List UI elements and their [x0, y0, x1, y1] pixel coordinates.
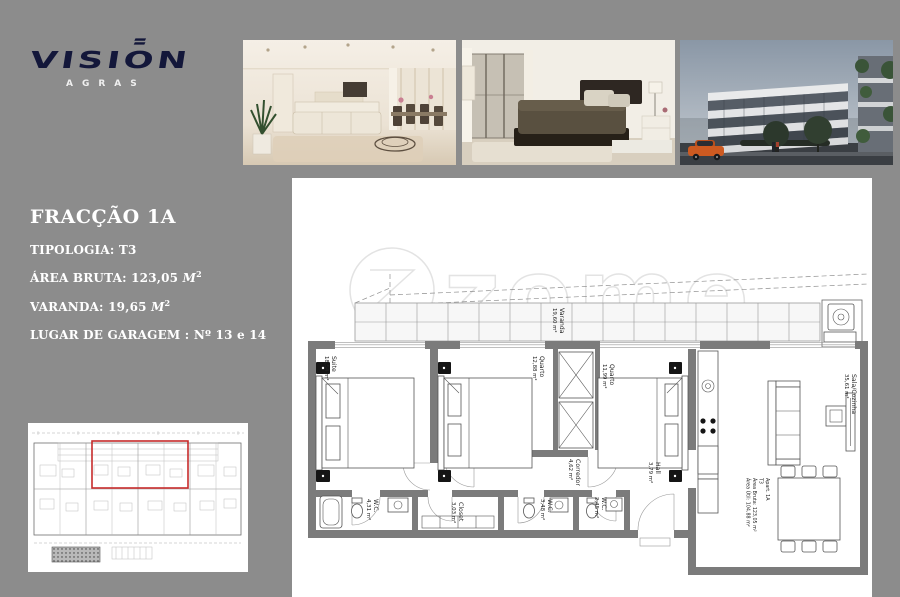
room-name: Quarto	[538, 356, 545, 378]
photo-living-room	[243, 40, 456, 165]
room-label-corredor: Corredor 4,62 m²	[567, 459, 581, 486]
living-room-render	[243, 40, 456, 165]
tv-screen	[343, 82, 367, 97]
kitchen-counter	[698, 351, 718, 513]
spec-area-bruta: ÁREA BRUTA: 123,05 M2	[30, 269, 285, 285]
room-name: W.C.	[546, 499, 553, 513]
room-name: Suite	[330, 356, 337, 372]
floor-plan-panel: zome	[292, 178, 872, 597]
room-name: W.C.	[600, 497, 607, 511]
fridge	[698, 479, 718, 513]
room-area: 3,79 m²	[647, 462, 654, 483]
built-in-wardrobes	[559, 352, 593, 448]
room-name: Closet	[457, 502, 464, 522]
photo-bedroom	[462, 40, 675, 165]
room-name: Sala/Cozinha	[850, 374, 857, 414]
wc1-fixtures	[320, 496, 408, 528]
room-name: W.C.	[372, 499, 379, 513]
room-area: 4,31 m²	[365, 499, 372, 520]
room-area: 11,99 m²	[601, 364, 608, 389]
door	[273, 74, 293, 132]
room-area: 2,45 m²	[593, 497, 600, 518]
brochure-page: VISION AGRAS	[0, 0, 900, 597]
logo-brand-text: VISION	[28, 47, 193, 74]
info-line: T3	[758, 477, 764, 484]
apartment-info-block: Apart. 1A T3 Área Bruta: 123,05 m² Área …	[745, 477, 771, 532]
decor-vase	[663, 108, 668, 113]
room-area: 18,54 m²	[323, 356, 330, 381]
vision-agras-logo: VISION AGRAS	[30, 46, 200, 89]
spec-garagem: LUGAR DE GARAGEM : Nº 13 e 14	[30, 326, 285, 342]
ramp-lines	[116, 547, 146, 559]
right-building	[855, 56, 893, 152]
rug	[273, 136, 423, 162]
room-area: 35,61 m²	[843, 374, 850, 399]
wall-art	[462, 66, 475, 100]
info-line: Apart. 1A	[764, 478, 770, 501]
room-name: Hall	[654, 462, 661, 474]
room-area: 4,62 m²	[567, 459, 574, 480]
entry-step	[640, 538, 670, 546]
key-plan-drawing	[28, 423, 248, 572]
sofa	[293, 102, 381, 134]
room-area: 12,88 m²	[531, 356, 538, 381]
fraction-title: FRACÇÃO 1A	[30, 206, 285, 228]
room-label-closet: Closet 3,03 m²	[450, 502, 464, 523]
lamp-icon	[649, 82, 662, 93]
spec-tipologia: TIPOLOGIA: T3	[30, 241, 285, 257]
quarto1-bed	[438, 362, 532, 482]
bedroom-render	[462, 40, 675, 165]
balcony	[355, 303, 820, 341]
room-area: 3,03 m²	[450, 502, 457, 523]
building-key-plan	[28, 423, 248, 572]
terrace-hatch	[52, 547, 100, 562]
room-name: Corredor	[574, 459, 581, 486]
unit-1a-highlight	[92, 441, 188, 488]
room-area: 19,60 m²	[551, 308, 558, 333]
suite-bed	[316, 362, 414, 482]
spec-varanda: VARANDA: 19,65 M2	[30, 298, 285, 314]
room-name: Quarto	[608, 364, 615, 386]
laundry-counter	[824, 332, 856, 342]
sofa-plan	[768, 381, 800, 465]
unit-divisions	[34, 443, 241, 535]
side-table	[826, 406, 846, 426]
photo-building	[680, 40, 893, 165]
logo-wordmark: VISION	[28, 49, 232, 72]
room-area: 3,48 m²	[539, 499, 546, 520]
info-line: Área Bruta: 123,05 m²	[751, 478, 758, 532]
bed-bench	[612, 140, 672, 153]
building-exterior-render	[680, 40, 893, 165]
laundry-nook	[822, 300, 862, 347]
logo-i-dots-icon	[134, 38, 146, 46]
room-label-wc2: W.C. 3,48 m²	[539, 499, 553, 520]
floor-plan-drawing: zome	[292, 178, 872, 597]
room-name: Varanda	[558, 308, 565, 334]
dining-set	[778, 466, 840, 552]
info-line: Área Útil: 104,88 m²	[745, 478, 752, 527]
fraction-details: FRACÇÃO 1A TIPOLOGIA: T3 ÁREA BRUTA: 123…	[30, 206, 285, 342]
room-label-quarto1: Quarto 12,88 m²	[531, 356, 545, 381]
logo-subtitle: AGRAS	[30, 79, 200, 89]
